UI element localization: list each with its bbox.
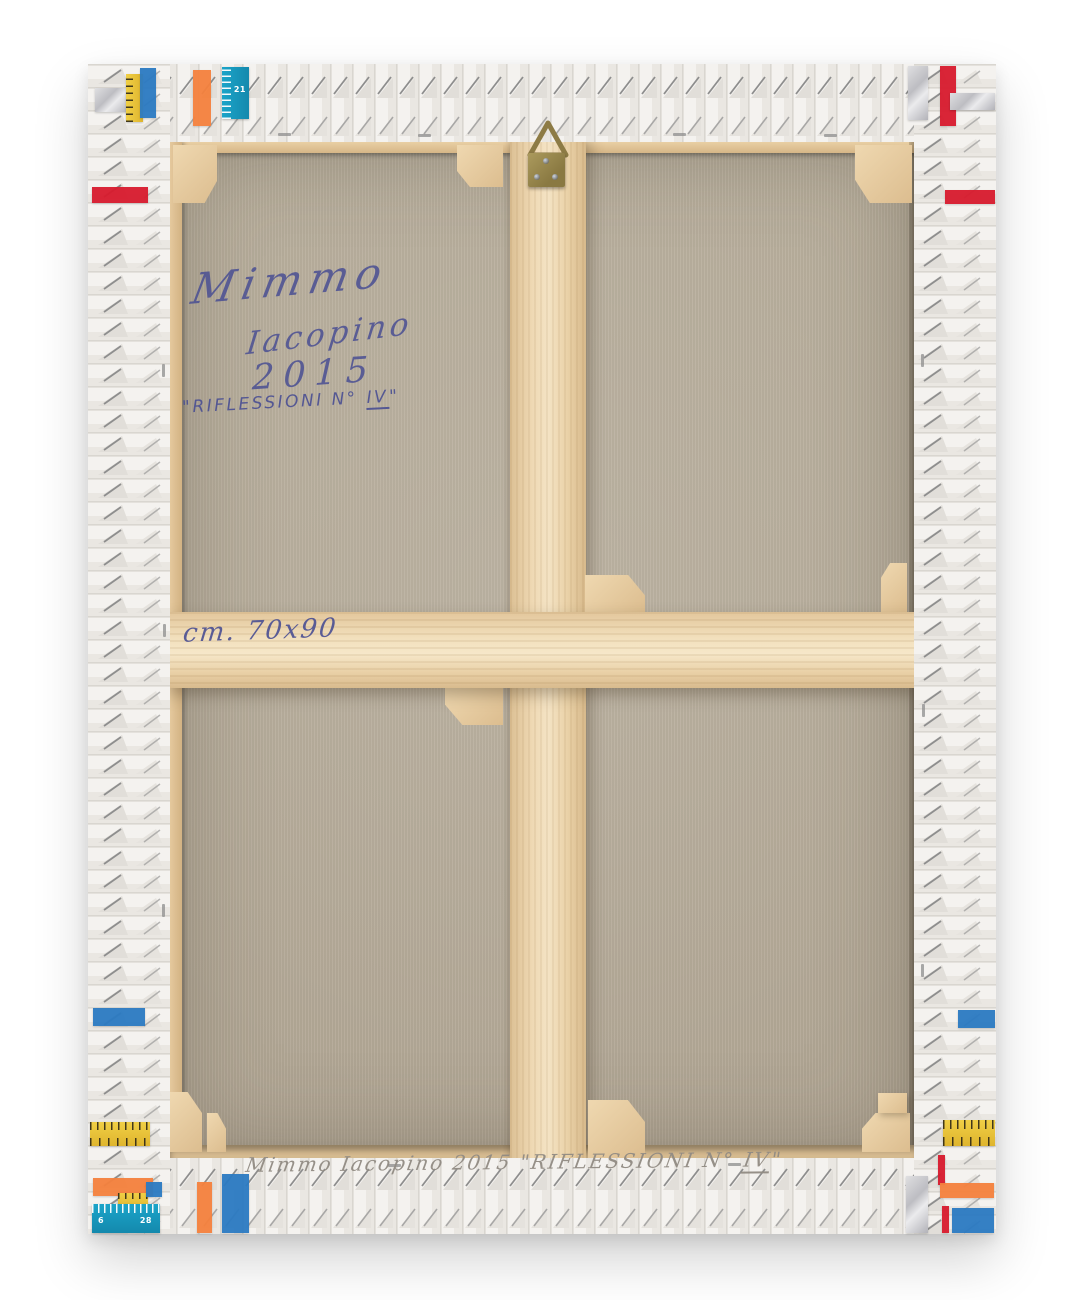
red-tape [92, 187, 148, 203]
staple [824, 134, 837, 137]
red-tape [942, 1206, 949, 1233]
pencil-text: Mimmo Iacopino 2015 "RIFLESSIONI N° [244, 1148, 745, 1177]
corner-key-bottom-right-2 [878, 1093, 907, 1113]
blue-tape [140, 68, 156, 118]
canvas-back: Mimmo Iacopino 2015 "RIFLESSIONI N° IV" … [88, 64, 996, 1234]
blue-tape [93, 1008, 145, 1026]
ruler-number: 28 [140, 1216, 152, 1225]
blue-tape [952, 1208, 994, 1233]
silver-tape [950, 93, 995, 110]
blue-tape [146, 1182, 162, 1197]
yellow-measuring-tape [943, 1120, 995, 1146]
title-numeral: IV [365, 387, 390, 410]
pencil-close-quote: " [769, 1147, 784, 1171]
hanger-plate [528, 153, 565, 187]
screw-icon [543, 158, 549, 164]
blue-tape [222, 1174, 249, 1233]
orange-tape [193, 70, 211, 126]
staple [163, 624, 166, 637]
staple [418, 134, 431, 137]
pencil-inscription: Mimmo Iacopino 2015 "RIFLESSIONI N° IV" [244, 1147, 784, 1177]
staple [162, 364, 165, 377]
title-close-quote: " [389, 386, 400, 407]
staple [921, 964, 924, 977]
screw-icon [552, 174, 558, 180]
silver-foil-tape [95, 88, 128, 112]
teal-measuring-tape: 628 [92, 1204, 160, 1233]
border-right [914, 64, 996, 1234]
border-left [88, 64, 170, 1234]
ruler-number: 6 [98, 1216, 104, 1225]
blue-tape [958, 1010, 995, 1028]
staple [673, 133, 686, 136]
ruler-number: 21 [234, 85, 246, 94]
orange-tape [940, 1183, 994, 1198]
staple [922, 704, 925, 717]
staple [162, 904, 165, 917]
silver-duct-tape [906, 1176, 928, 1233]
red-tape [938, 1155, 945, 1185]
size-note: cm. 70x90 [181, 613, 339, 649]
staple [921, 354, 924, 367]
silver-tape [908, 66, 928, 120]
photo-background: Mimmo Iacopino 2015 "RIFLESSIONI N° IV" … [0, 0, 1088, 1300]
staple [278, 133, 291, 136]
screw-icon [534, 174, 540, 180]
red-tape [945, 190, 995, 204]
teal-measuring-tape: 21 [222, 67, 249, 119]
yellow-measuring-tape [90, 1122, 150, 1146]
orange-tape [197, 1182, 212, 1233]
